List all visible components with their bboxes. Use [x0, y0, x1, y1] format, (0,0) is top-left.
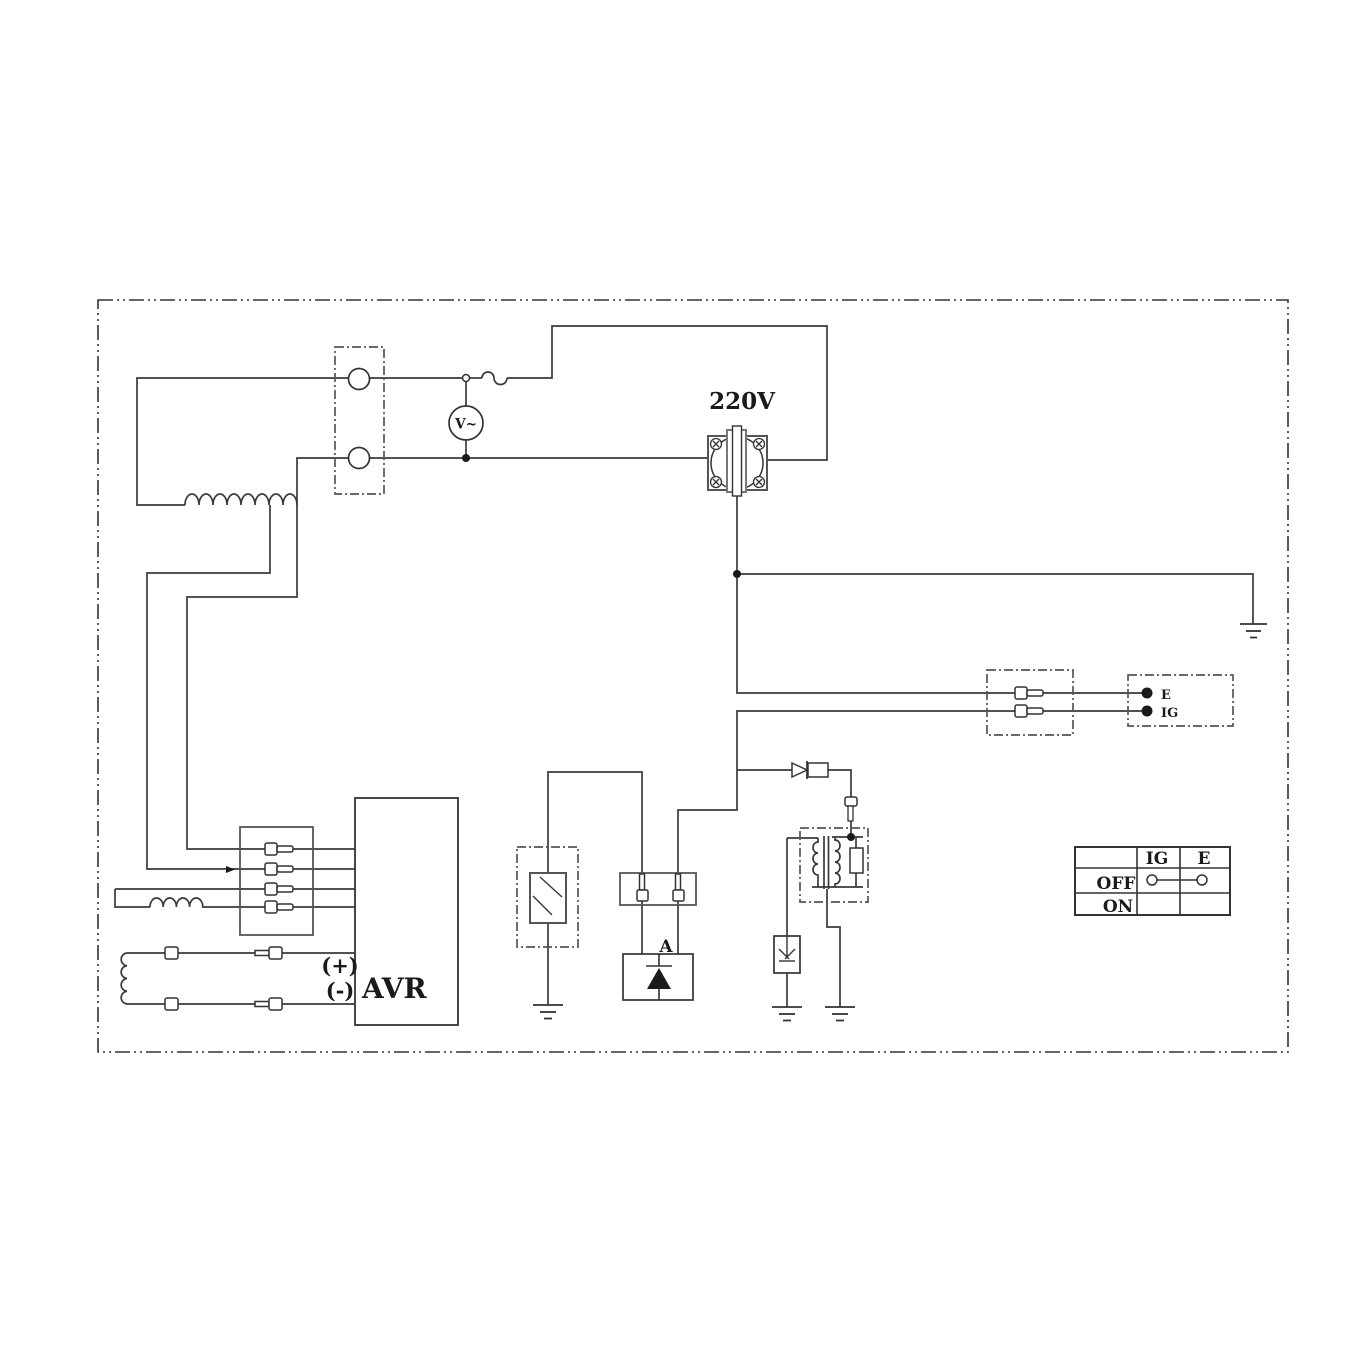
wire-tap-2 — [187, 505, 297, 849]
sub-winding-coil — [150, 898, 265, 907]
table-row-on: ON — [1103, 897, 1133, 917]
avr-label: AVR — [361, 972, 427, 1005]
field-winding-coil — [121, 953, 127, 1004]
diagram-border — [98, 300, 1288, 1052]
field-plus-label: (+) — [321, 953, 358, 978]
wire-socket-feed — [507, 326, 827, 460]
junction-dot-3 — [847, 833, 855, 841]
fuse-symbol — [482, 372, 507, 385]
main-winding-coil — [185, 494, 297, 505]
socket-voltage-label: 220V — [709, 388, 776, 415]
ignition-primary-coil — [813, 838, 818, 887]
field-minus-label: (-) — [326, 978, 355, 1003]
terminal-ig-label: IG — [1161, 706, 1178, 721]
wire-frame-ground — [737, 574, 1253, 624]
junction-dot-1 — [462, 454, 470, 462]
field-connector-pins — [165, 947, 282, 1010]
ignition-coil-unit — [800, 828, 868, 902]
four-pin-connector — [226, 827, 313, 935]
diode-icon — [792, 763, 807, 777]
wire-e — [737, 574, 1142, 693]
table-header-e: E — [1198, 849, 1211, 869]
two-pin-connector — [620, 873, 696, 905]
ignition-core — [824, 836, 829, 889]
stop-switch-connector: E IG — [987, 670, 1233, 735]
diode-unit-a: A — [623, 937, 693, 1000]
wire-stator-top — [137, 378, 466, 505]
terminal-circle-top — [349, 369, 370, 390]
junction-open — [463, 375, 470, 382]
wire-ig — [678, 711, 1142, 874]
table-header-ig: IG — [1146, 849, 1168, 869]
ground-spark-plug-icon — [772, 1007, 802, 1021]
table-row-off: OFF — [1097, 874, 1136, 894]
terminal-e-label: E — [1161, 688, 1171, 703]
terminal-circle-bottom — [349, 448, 370, 469]
terminal-ig-dot — [1142, 706, 1153, 717]
wiring-diagram-canvas: V~ 220V E IG — [0, 0, 1352, 1352]
voltmeter-label: V~ — [454, 417, 477, 433]
wiring-diagram-page: V~ 220V E IG — [0, 0, 1352, 1352]
ground-ignition-icon — [825, 1007, 855, 1021]
ignition-secondary-coil — [835, 837, 840, 887]
socket-blade — [733, 426, 742, 496]
ignition-resistor — [850, 848, 863, 873]
ac-socket-220v: 220V — [708, 388, 776, 578]
suppressor-box — [808, 763, 828, 777]
wire-secondary-return — [827, 889, 840, 1007]
avr-module: AVR (+) (-) — [321, 798, 458, 1025]
ground-condenser-icon — [533, 1005, 563, 1019]
ground-frame-icon — [1240, 624, 1267, 638]
wire-condenser-top — [548, 772, 642, 874]
wire-tap-1 — [147, 505, 270, 869]
terminal-e-dot — [1142, 688, 1153, 699]
stop-switch-table: IG E OFF ON — [1075, 847, 1230, 917]
wire-mark — [226, 866, 235, 873]
junction-dot-2 — [733, 570, 741, 578]
output-terminal-block — [335, 347, 384, 494]
spark-plug — [774, 936, 800, 973]
